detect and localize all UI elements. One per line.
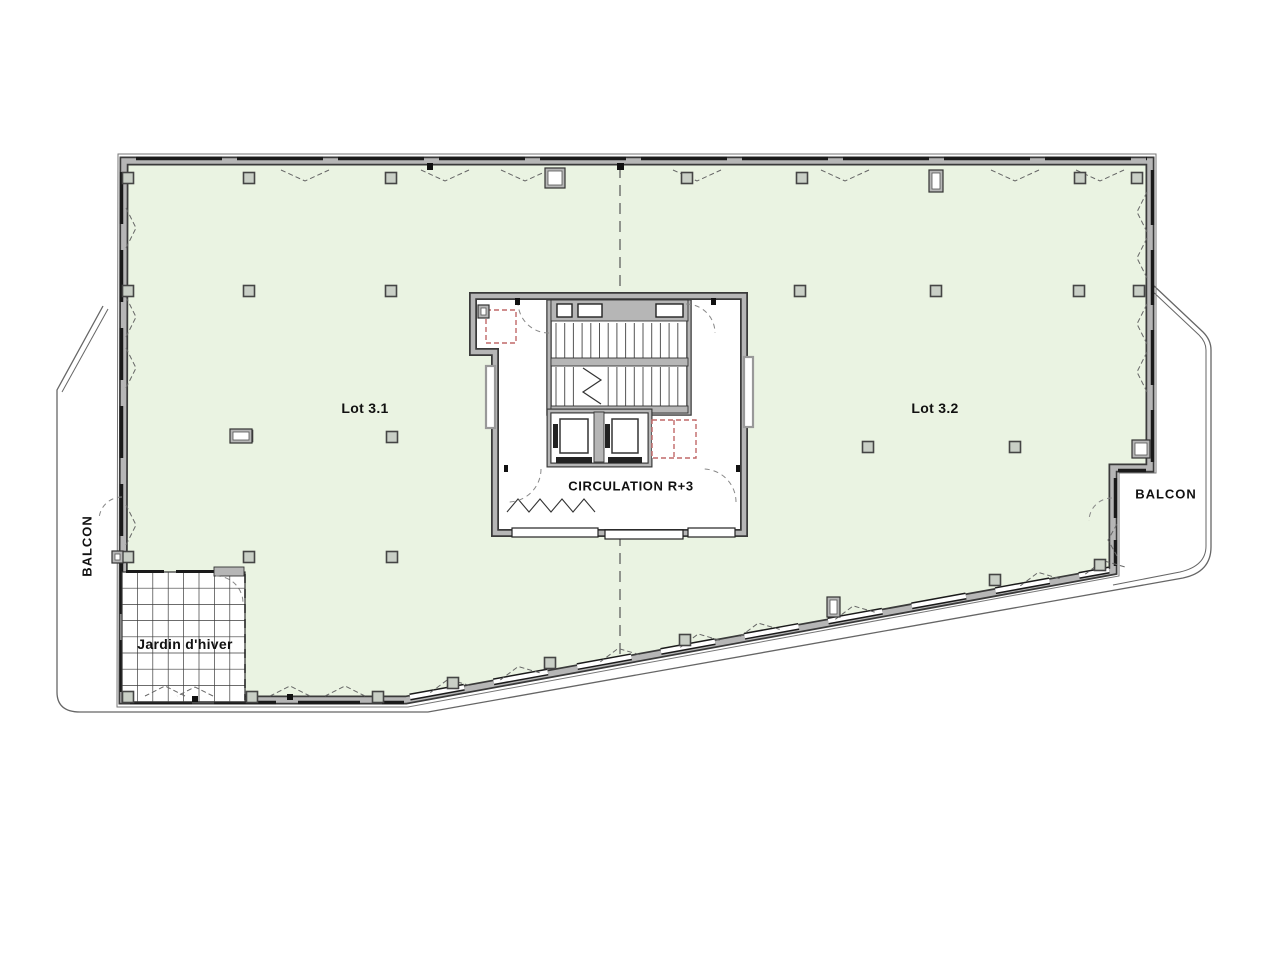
column [1010, 442, 1021, 453]
winter-garden-label: Jardin d'hiver [137, 636, 232, 652]
column [386, 286, 397, 297]
core-right-shaft [744, 357, 753, 427]
column [545, 658, 556, 669]
column [680, 635, 691, 646]
column [244, 173, 255, 184]
column [990, 575, 1001, 586]
circulation-label: CIRCULATION R+3 [568, 479, 693, 494]
column [123, 173, 134, 184]
winter-garden [122, 567, 245, 702]
column [123, 692, 134, 703]
corridor-windows [512, 528, 735, 539]
column [1132, 173, 1143, 184]
column [863, 442, 874, 453]
column [373, 692, 384, 703]
column [1095, 560, 1106, 571]
stairwell [549, 300, 689, 413]
column [244, 286, 255, 297]
column [1134, 286, 1145, 297]
column [387, 432, 398, 443]
column [123, 552, 134, 563]
lot-3-2-label: Lot 3.2 [911, 400, 958, 416]
column [386, 173, 397, 184]
column [1074, 286, 1085, 297]
lot-3-1-label: Lot 3.1 [341, 400, 388, 416]
circulation-core [473, 296, 753, 539]
column [931, 286, 942, 297]
column [795, 286, 806, 297]
balcony-right-label: BALCON [1135, 487, 1197, 502]
column [387, 552, 398, 563]
core-left-shaft [486, 366, 495, 428]
column [797, 173, 808, 184]
balcony-left-label: BALCON [80, 515, 95, 577]
elevator-car-right [612, 419, 638, 453]
elevator-car-left [560, 419, 588, 453]
column [1075, 173, 1086, 184]
floor-plan-page: Lot 3.1 Lot 3.2 CIRCULATION R+3 Jardin d… [0, 0, 1280, 960]
elevators [549, 411, 650, 465]
column [123, 286, 134, 297]
column [247, 692, 258, 703]
column [244, 552, 255, 563]
column [682, 173, 693, 184]
column [448, 678, 459, 689]
